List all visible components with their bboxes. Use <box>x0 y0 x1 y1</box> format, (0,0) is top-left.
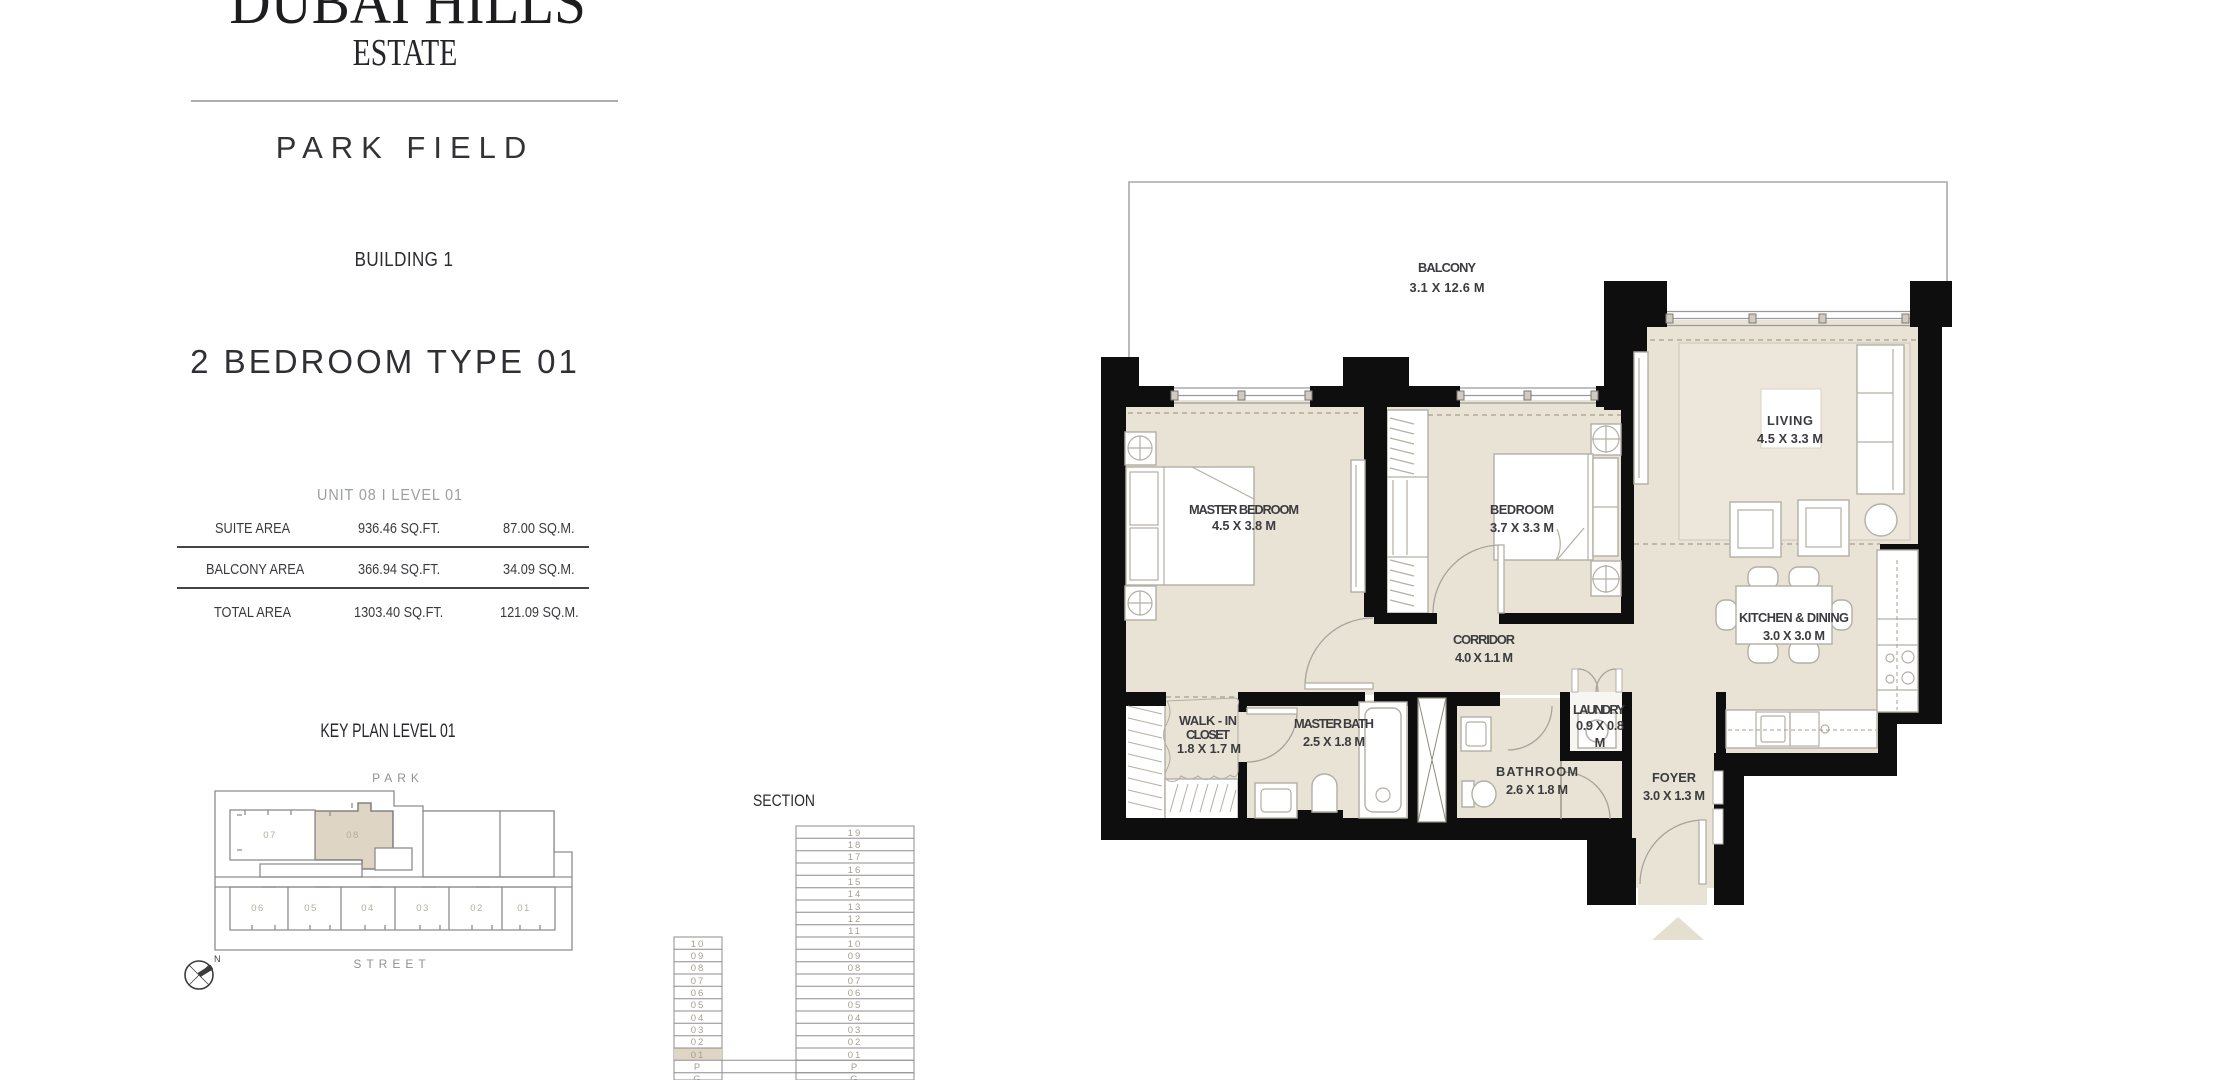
svg-text:KITCHEN & DINING: KITCHEN & DINING <box>1739 610 1849 625</box>
svg-text:3.7 X 3.3 M: 3.7 X 3.3 M <box>1490 520 1554 535</box>
svg-text:06: 06 <box>848 988 863 999</box>
svg-text:07: 07 <box>263 830 277 841</box>
svg-text:11: 11 <box>848 926 862 937</box>
svg-text:1.8 X 1.7 M: 1.8 X 1.7 M <box>1177 741 1241 756</box>
svg-text:FOYER: FOYER <box>1652 770 1696 785</box>
svg-text:06: 06 <box>691 988 706 999</box>
svg-text:01: 01 <box>848 1050 863 1061</box>
svg-text:05: 05 <box>848 1000 863 1011</box>
svg-text:PARK: PARK <box>372 771 424 785</box>
svg-text:01: 01 <box>517 903 531 914</box>
svg-text:13: 13 <box>848 902 863 913</box>
svg-text:04: 04 <box>361 903 375 914</box>
svg-text:02: 02 <box>470 903 484 914</box>
svg-text:03: 03 <box>691 1025 706 1036</box>
svg-text:SECTION: SECTION <box>753 791 815 810</box>
svg-text:3.1 X 12.6 M: 3.1 X 12.6 M <box>1410 280 1485 295</box>
svg-text:02: 02 <box>848 1037 863 1048</box>
svg-text:G: G <box>850 1074 859 1080</box>
svg-text:STREET: STREET <box>353 957 430 971</box>
svg-text:01: 01 <box>691 1050 706 1061</box>
svg-text:07: 07 <box>691 976 706 987</box>
svg-text:10: 10 <box>848 939 863 950</box>
svg-text:03: 03 <box>848 1025 863 1036</box>
svg-text:09: 09 <box>691 951 706 962</box>
svg-text:2.6 X 1.8 M: 2.6 X 1.8 M <box>1506 782 1568 797</box>
svg-text:4.0 X 1.1 M: 4.0 X 1.1 M <box>1455 650 1513 665</box>
svg-text:05: 05 <box>691 1000 706 1011</box>
svg-text:03: 03 <box>416 903 430 914</box>
svg-text:3.0 X 1.3 M: 3.0 X 1.3 M <box>1643 788 1705 803</box>
svg-text:06: 06 <box>251 903 265 914</box>
svg-text:LIVING: LIVING <box>1767 413 1813 428</box>
svg-text:05: 05 <box>304 903 318 914</box>
svg-text:G: G <box>693 1074 702 1080</box>
svg-text:12: 12 <box>848 914 863 925</box>
svg-text:08: 08 <box>848 963 863 974</box>
svg-text:N: N <box>214 954 221 964</box>
svg-text:P: P <box>851 1062 859 1073</box>
svg-text:18: 18 <box>848 840 863 851</box>
svg-text:15: 15 <box>848 877 863 888</box>
svg-text:BATHROOM: BATHROOM <box>1496 764 1578 779</box>
svg-text:2.5 X 1.8 M: 2.5 X 1.8 M <box>1303 734 1365 749</box>
svg-text:M: M <box>1595 735 1606 750</box>
svg-text:3.0 X 3.0 M: 3.0 X 3.0 M <box>1763 628 1825 643</box>
svg-text:16: 16 <box>848 865 863 876</box>
svg-text:CLOSET: CLOSET <box>1186 727 1230 742</box>
svg-text:MASTER BEDROOM: MASTER BEDROOM <box>1189 502 1299 517</box>
svg-text:09: 09 <box>848 951 863 962</box>
svg-text:10: 10 <box>691 939 706 950</box>
svg-text:4.5 X 3.8 M: 4.5 X 3.8 M <box>1212 518 1276 533</box>
svg-text:02: 02 <box>691 1037 706 1048</box>
svg-text:0.9 X 0.8: 0.9 X 0.8 <box>1576 718 1624 733</box>
svg-text:WALK - IN: WALK - IN <box>1179 713 1237 728</box>
svg-text:LAUNDRY: LAUNDRY <box>1573 702 1625 717</box>
svg-text:04: 04 <box>848 1013 863 1024</box>
svg-text:17: 17 <box>848 852 863 863</box>
svg-text:CORRIDOR: CORRIDOR <box>1453 632 1515 647</box>
svg-text:07: 07 <box>848 976 863 987</box>
svg-text:04: 04 <box>691 1013 706 1024</box>
svg-text:08: 08 <box>691 963 706 974</box>
svg-text:14: 14 <box>848 889 863 900</box>
svg-text:P: P <box>694 1062 702 1073</box>
svg-text:MASTER BATH: MASTER BATH <box>1294 716 1374 731</box>
svg-text:BEDROOM: BEDROOM <box>1490 502 1554 517</box>
svg-text:08: 08 <box>346 830 360 841</box>
svg-text:19: 19 <box>848 828 863 839</box>
svg-text:4.5 X 3.3 M: 4.5 X 3.3 M <box>1757 431 1823 446</box>
svg-text:BALCONY: BALCONY <box>1418 260 1476 275</box>
